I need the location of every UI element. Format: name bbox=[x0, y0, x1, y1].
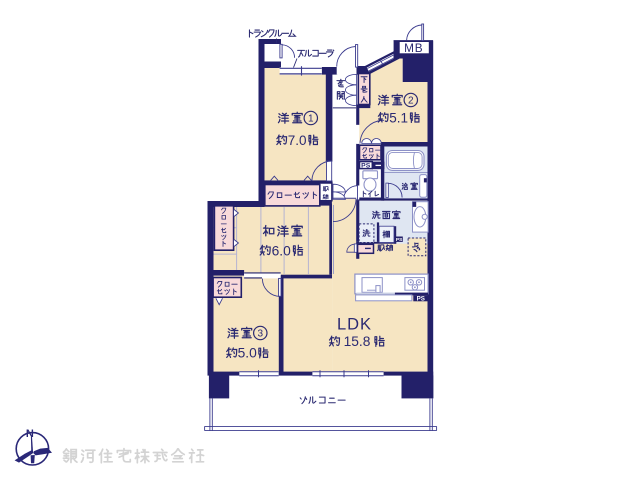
svg-text:1: 1 bbox=[308, 114, 314, 125]
svg-text:N: N bbox=[26, 428, 34, 440]
svg-text:7.0: 7.0 bbox=[288, 133, 307, 148]
svg-text:3: 3 bbox=[258, 329, 264, 340]
svg-text:2: 2 bbox=[408, 96, 414, 107]
svg-text:PS: PS bbox=[361, 162, 371, 169]
svg-text:PS: PS bbox=[417, 295, 425, 302]
svg-text:MB: MB bbox=[404, 41, 423, 55]
svg-text:LDK: LDK bbox=[337, 316, 372, 334]
svg-text:PS: PS bbox=[396, 237, 403, 243]
svg-text:15.8: 15.8 bbox=[344, 334, 371, 349]
svg-text:5.1: 5.1 bbox=[389, 110, 408, 125]
svg-text:6.0: 6.0 bbox=[272, 243, 292, 258]
svg-text:5.0: 5.0 bbox=[238, 346, 258, 361]
